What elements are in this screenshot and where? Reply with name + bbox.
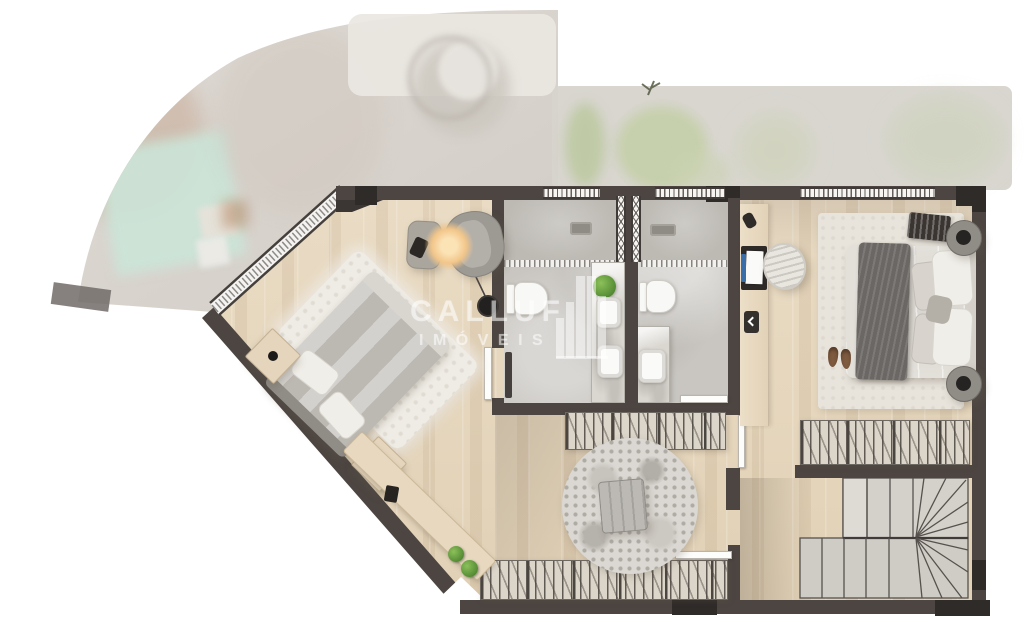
master-wall-lower [726, 468, 740, 510]
staircase [800, 478, 968, 598]
watermark-building-logo [556, 270, 608, 360]
window-top-1 [543, 187, 600, 199]
right-wall-cap [972, 560, 986, 590]
ghost-wall-cap [51, 282, 111, 312]
paper-sheet [745, 251, 763, 285]
floor-lamp-glow [424, 221, 474, 271]
potted-plant [448, 546, 464, 562]
hall-bench [598, 478, 648, 534]
window-master [800, 187, 935, 199]
window-top-2 [655, 187, 725, 199]
bath-left-door [484, 347, 492, 400]
bottom-wall [460, 600, 986, 614]
reading-lamp-icon [956, 376, 971, 391]
shower-window-2 [631, 196, 641, 262]
shower-window-1 [616, 196, 626, 262]
potted-plant [461, 560, 478, 577]
floor-plan: CALLUF IMÓVEIS [0, 0, 1024, 636]
master-closet [800, 420, 970, 465]
top-wall-block [355, 186, 377, 205]
table-lamp-icon [268, 351, 278, 361]
watermark-subtitle: IMÓVEIS [419, 332, 552, 350]
clothes-tray [907, 212, 951, 242]
reading-lamp-icon [956, 230, 971, 245]
blue-notebook [741, 254, 746, 282]
bath-divider-wall [625, 258, 638, 403]
stairhall-door [675, 551, 732, 559]
watermark-brand: CALLUF [410, 295, 566, 329]
book [384, 485, 400, 503]
bath-right-door [680, 395, 728, 403]
master-closet-wall [795, 465, 986, 478]
chevron-left-icon [748, 317, 758, 327]
bottom-wall-block [672, 600, 717, 615]
phone [744, 311, 759, 333]
bath-right-wall [728, 198, 740, 415]
bottom-wall-block [935, 600, 990, 616]
master-bed-throw [855, 242, 911, 380]
right-wall-cap [972, 186, 986, 212]
